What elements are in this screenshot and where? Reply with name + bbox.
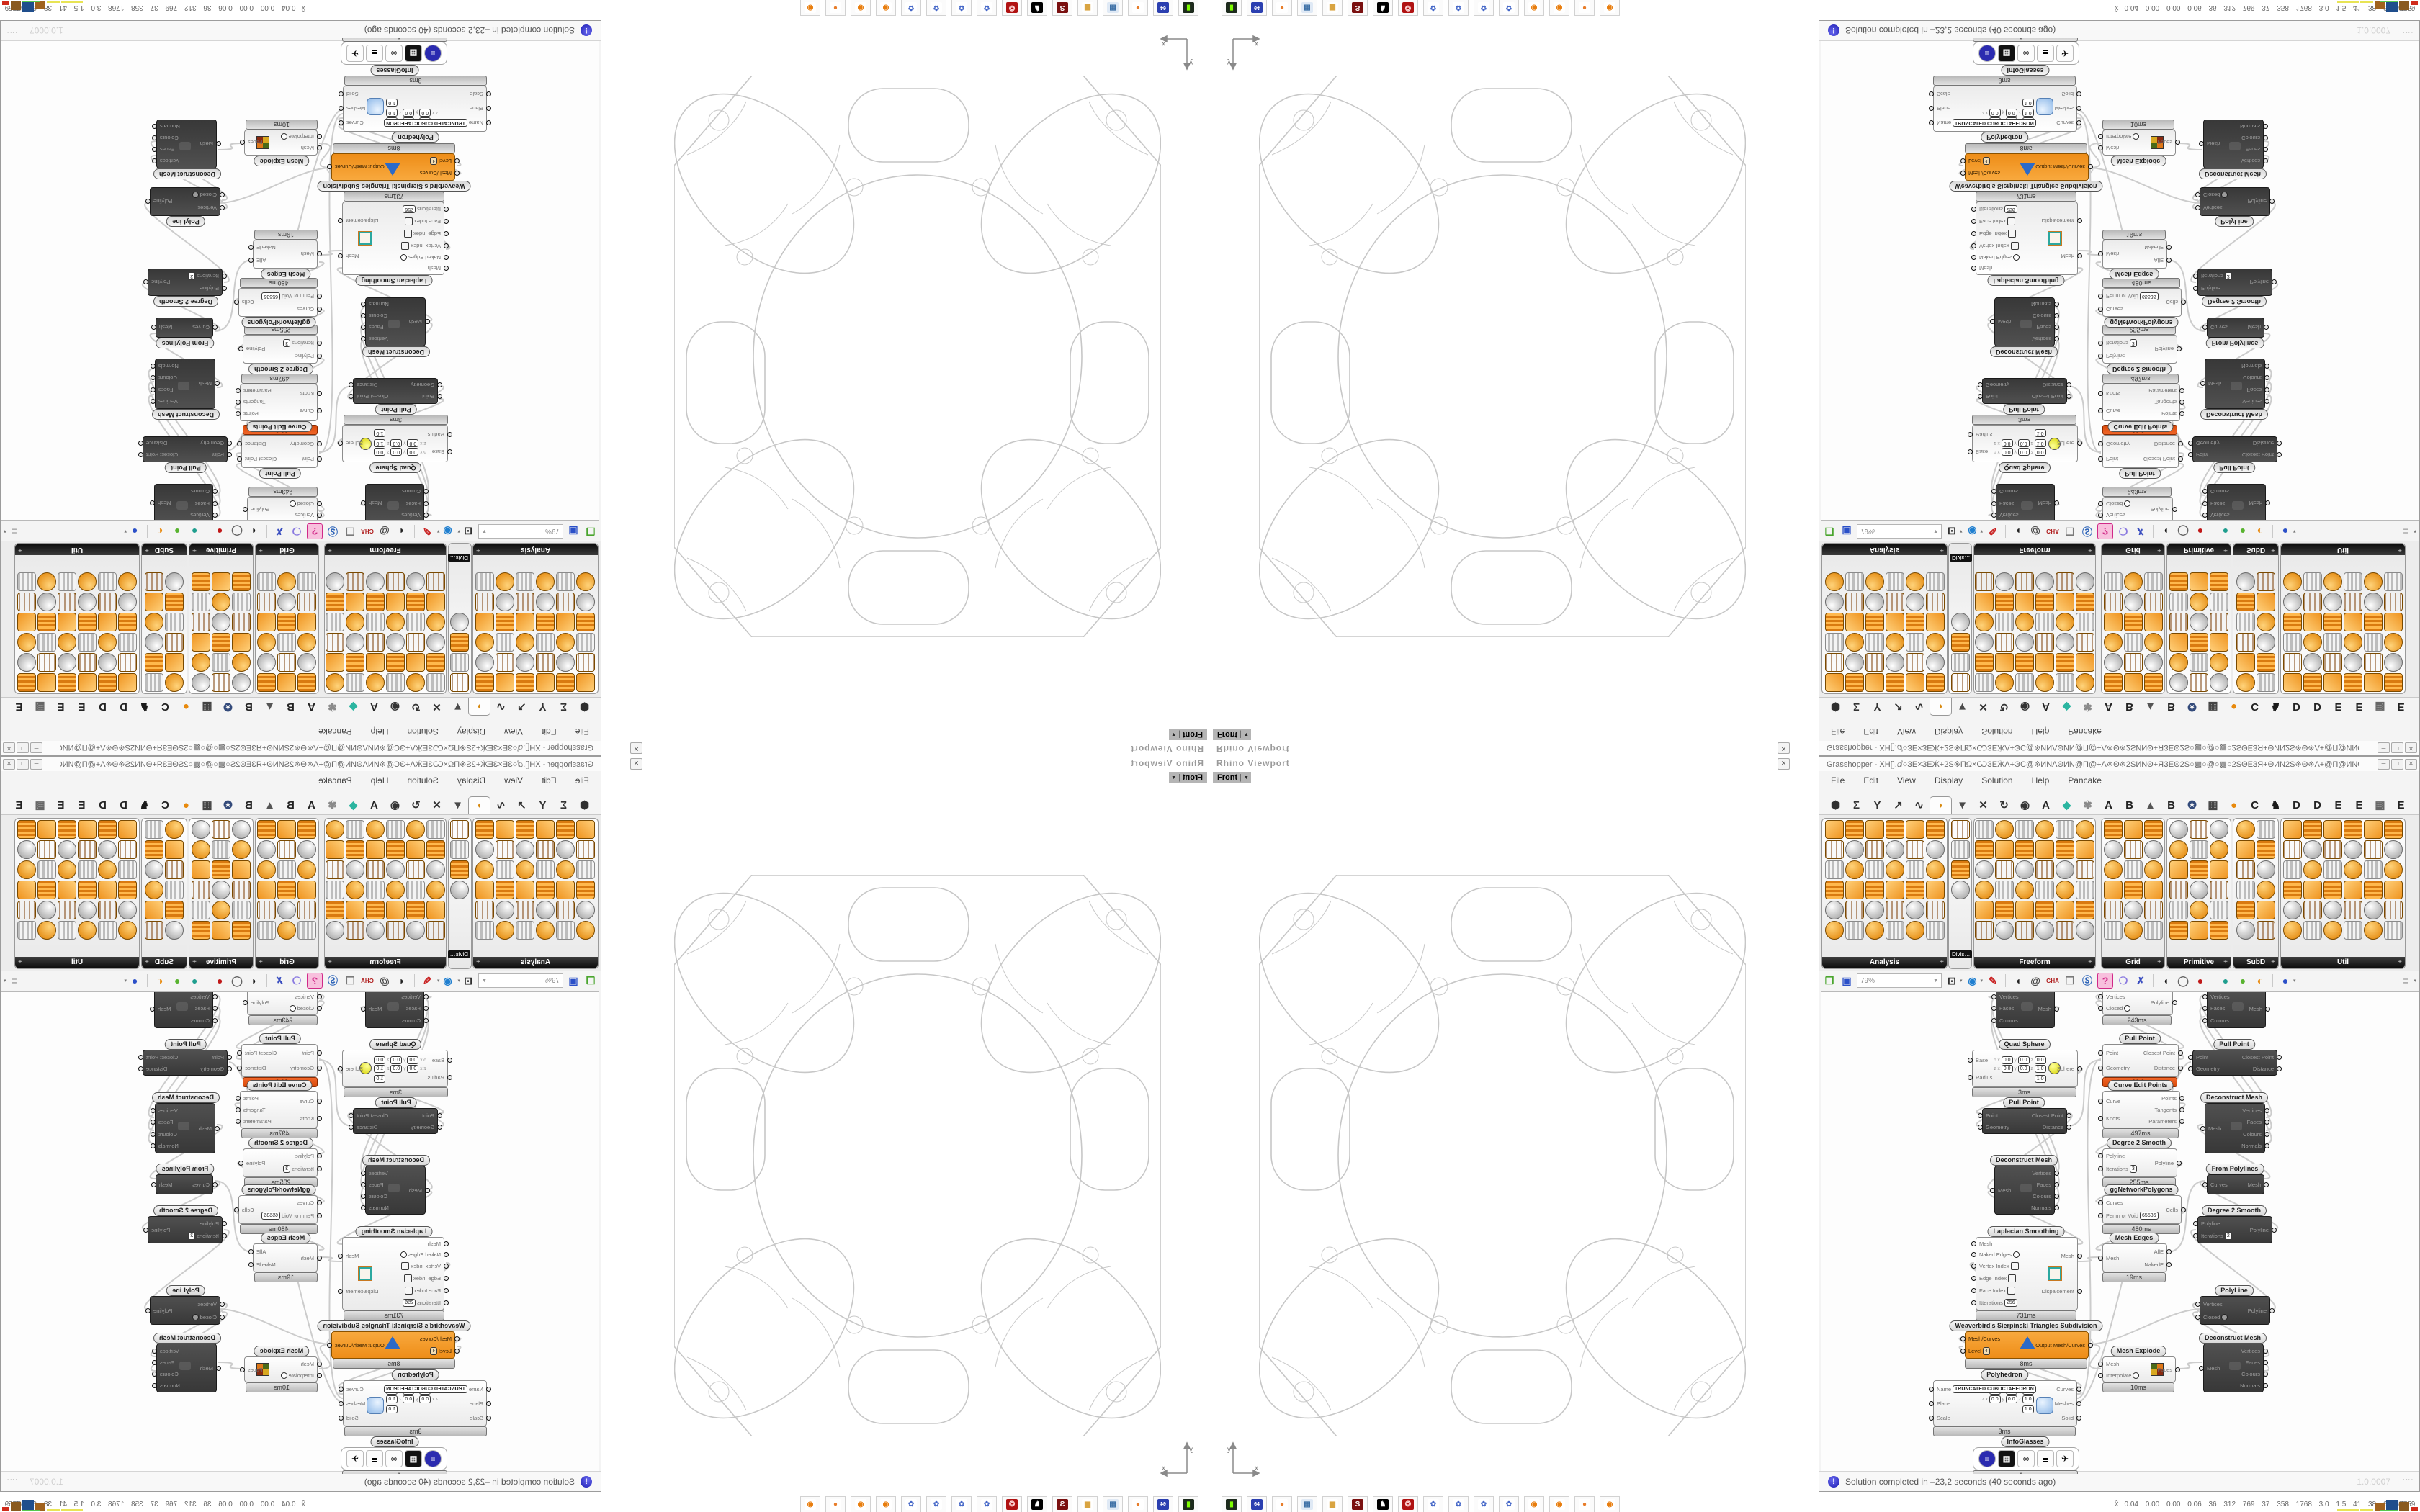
component-tile[interactable] xyxy=(2364,840,2383,859)
component-tile[interactable] xyxy=(1975,633,1994,652)
component-tile[interactable] xyxy=(278,633,297,652)
viewport-tab-front[interactable]: Front | ▼ xyxy=(1169,729,1207,740)
component-tile[interactable] xyxy=(145,840,163,859)
component-tile[interactable] xyxy=(2056,653,2074,672)
component-tile[interactable] xyxy=(1886,673,1904,692)
tab-curve[interactable]: ∿ xyxy=(490,798,511,814)
component-tile[interactable] xyxy=(476,901,495,919)
component-tile[interactable] xyxy=(451,840,470,859)
component-tile[interactable] xyxy=(278,901,297,919)
toolbar-overflow-button-icon[interactable]: ≡ xyxy=(2398,524,2413,539)
zoom-extents-button-icon[interactable]: ⊡ xyxy=(1945,973,1959,988)
component-tile[interactable] xyxy=(1975,921,1994,940)
dropdown-arrow-icon[interactable]: ▾ xyxy=(457,978,460,984)
balloons-button-icon[interactable]: ❍ xyxy=(2116,973,2130,988)
tab-plugin-e1[interactable]: E xyxy=(2328,799,2349,814)
node-degree-2-smooth[interactable]: PolylineIterations2Polyline xyxy=(148,1216,223,1243)
component-tile[interactable] xyxy=(557,820,575,839)
gh-minimize-button[interactable]: ─ xyxy=(30,742,42,753)
taskbar-app-blender[interactable]: ◉ xyxy=(1600,1496,1620,1512)
component-tile[interactable] xyxy=(2384,633,2403,652)
component-tile[interactable] xyxy=(1845,840,1864,859)
component-tile[interactable] xyxy=(2323,840,2342,859)
infoglasses-icon-3[interactable]: ≣ xyxy=(366,1450,383,1467)
tab-plugin-b1[interactable]: B xyxy=(2119,799,2140,814)
infoglasses-button-icon[interactable]: @ xyxy=(377,973,392,988)
node-polyline[interactable]: VerticesClosedPolyline xyxy=(2200,1296,2270,1325)
combo-arrow-icon[interactable]: ▼ xyxy=(482,529,487,534)
component-tile[interactable] xyxy=(2257,840,2275,859)
tab-mesh[interactable]: ▼ xyxy=(1952,799,1973,814)
component-tile[interactable] xyxy=(496,593,515,611)
component-tile[interactable] xyxy=(1845,653,1864,672)
tab-plugin-grid[interactable]: ▦ xyxy=(197,698,218,714)
menu-item-file[interactable]: File xyxy=(1829,725,1846,738)
preview-selected-button-icon[interactable]: ● xyxy=(2218,973,2233,988)
export-view-button-icon[interactable]: ❐ xyxy=(2063,973,2077,988)
preview-off-button-icon[interactable]: ◖ xyxy=(247,524,261,539)
component-tile[interactable] xyxy=(2344,820,2362,839)
component-tile[interactable] xyxy=(1975,881,1994,899)
component-tile[interactable] xyxy=(1886,840,1904,859)
component-tile[interactable] xyxy=(366,673,385,692)
component-tile[interactable] xyxy=(2015,572,2034,591)
combo-arrow-icon[interactable]: ▼ xyxy=(1933,978,1938,984)
component-tile[interactable] xyxy=(1825,593,1844,611)
component-tile[interactable] xyxy=(451,653,470,672)
component-tile[interactable] xyxy=(278,653,297,672)
component-tile[interactable] xyxy=(1926,572,1945,591)
component-tile[interactable] xyxy=(496,820,515,839)
component-tile[interactable] xyxy=(2364,613,2383,631)
node-ggnetworkpolygons[interactable]: CurvesPerim or Void65536Cells xyxy=(238,1195,318,1224)
taskbar-app-folder[interactable]: ▆ xyxy=(1322,1496,1343,1512)
component-tile[interactable] xyxy=(386,840,405,859)
tab-params[interactable]: ⬢ xyxy=(574,798,595,814)
component-tile[interactable] xyxy=(298,613,317,631)
taskbar-app-folder[interactable]: ▆ xyxy=(1077,0,1098,16)
taskbar-app-emulator[interactable]: ▮ xyxy=(1178,1496,1198,1512)
component-tile[interactable] xyxy=(346,901,364,919)
gh-maximize-button[interactable]: □ xyxy=(17,742,29,753)
component-tile[interactable] xyxy=(2323,593,2342,611)
component-tile[interactable] xyxy=(1865,633,1884,652)
tab-plugin-dot[interactable]: ● xyxy=(2223,799,2244,814)
node-construct-mesh[interactable]: VerticesFacesColoursMesh xyxy=(1996,991,2055,1028)
taskbar-app-paint[interactable]: ✿ xyxy=(1474,1496,1494,1512)
component-tile[interactable] xyxy=(165,860,184,879)
value-box[interactable]: 4 xyxy=(1983,158,1990,166)
component-tile[interactable] xyxy=(1926,613,1945,631)
component-tile[interactable] xyxy=(78,653,97,672)
tab-plugin-dots[interactable]: ▩ xyxy=(30,698,50,714)
palette-label[interactable]: Freeform+ xyxy=(325,957,446,968)
node-degree-2-smooth[interactable]: PolylineIterations3Polyline xyxy=(2102,335,2177,364)
component-tile[interactable] xyxy=(2104,633,2123,652)
tab-plugin-d2[interactable]: D xyxy=(2307,698,2328,713)
component-tile[interactable] xyxy=(2169,653,2188,672)
save-file-button-icon[interactable]: ▣ xyxy=(1839,973,1854,988)
taskbar-app-knight-black[interactable]: ♞ xyxy=(1373,0,1393,16)
component-tile[interactable] xyxy=(406,653,425,672)
component-tile[interactable] xyxy=(2104,673,2123,692)
node-from-polylines[interactable]: CurvesMesh xyxy=(156,318,213,338)
component-tile[interactable] xyxy=(1975,860,1994,879)
tab-intersect[interactable]: ✕ xyxy=(1973,798,1994,814)
taskbar-app-blender[interactable]: ◉ xyxy=(851,1496,871,1512)
viewport-tab-front[interactable]: Front | ▼ xyxy=(1169,772,1207,783)
component-tile[interactable] xyxy=(165,613,184,631)
component-tile[interactable] xyxy=(2035,572,2054,591)
document-preview-button-icon[interactable]: ● xyxy=(2278,524,2293,539)
taskbar-app-paint[interactable]: ✿ xyxy=(1448,0,1469,16)
tab-intersect[interactable]: ✕ xyxy=(426,698,447,714)
taskbar-app-firefox[interactable]: ● xyxy=(825,1496,846,1512)
component-tile[interactable] xyxy=(2169,820,2188,839)
component-tile[interactable] xyxy=(577,613,596,631)
component-tile[interactable] xyxy=(78,633,97,652)
component-tile[interactable] xyxy=(2076,840,2094,859)
component-tile[interactable] xyxy=(326,633,344,652)
node-construct-mesh[interactable]: VerticesFacesColoursMesh xyxy=(2207,484,2266,521)
menu-item-solution[interactable]: Solution xyxy=(1980,725,2014,738)
balloons-button-icon[interactable]: ❍ xyxy=(290,524,304,539)
component-tile[interactable] xyxy=(1845,673,1864,692)
menu-item-view[interactable]: View xyxy=(503,725,524,738)
component-tile[interactable] xyxy=(1845,820,1864,839)
component-tile[interactable] xyxy=(2190,593,2208,611)
component-tile[interactable] xyxy=(1926,673,1945,692)
component-tile[interactable] xyxy=(2257,881,2275,899)
component-tile[interactable] xyxy=(78,881,97,899)
component-tile[interactable] xyxy=(2035,653,2054,672)
gha-loader-button-icon[interactable]: GHA xyxy=(2045,973,2060,988)
component-tile[interactable] xyxy=(2124,633,2143,652)
menu-item-file[interactable]: File xyxy=(574,774,591,787)
node-weaverbird-s-sierpinski-triangles-subdivision[interactable]: Mesh/CurvesLevel4Output Mesh/Curves xyxy=(1965,153,2089,181)
component-tile[interactable] xyxy=(232,840,251,859)
component-tile[interactable] xyxy=(386,921,405,940)
component-tile[interactable] xyxy=(2210,673,2228,692)
toggle-on[interactable] xyxy=(2221,1314,2228,1320)
component-tile[interactable] xyxy=(58,840,76,859)
search-components-button-icon[interactable]: Ⓢ xyxy=(2080,524,2094,539)
component-tile[interactable] xyxy=(2364,860,2383,879)
component-tile[interactable] xyxy=(2190,613,2208,631)
menu-item-pancake[interactable]: Pancake xyxy=(2066,725,2103,738)
component-tile[interactable] xyxy=(1906,572,1924,591)
component-tile[interactable] xyxy=(1926,901,1945,919)
taskbar-app-c64-disk[interactable]: 64 xyxy=(1247,1496,1267,1512)
menu-item-edit[interactable]: Edit xyxy=(540,725,558,738)
tab-plugin-b2[interactable]: B xyxy=(238,799,259,814)
menu-item-display[interactable]: Display xyxy=(1933,725,1964,738)
node-from-polylines[interactable]: CurvesMesh xyxy=(2207,318,2264,338)
taskbar-app-paint[interactable]: ✿ xyxy=(951,0,972,16)
component-tile[interactable] xyxy=(258,613,277,631)
taskbar-app-blender[interactable]: ◉ xyxy=(1524,0,1544,16)
component-tile[interactable] xyxy=(2236,840,2255,859)
node-from-polylines[interactable]: CurvesMesh xyxy=(2207,1174,2264,1194)
component-tile[interactable] xyxy=(2236,673,2255,692)
component-tile[interactable] xyxy=(1825,901,1844,919)
component-tile[interactable] xyxy=(2104,820,2123,839)
preview-off-button-icon[interactable]: ◖ xyxy=(247,973,261,988)
dropdown-arrow-icon[interactable]: ▾ xyxy=(1960,978,1963,984)
component-tile[interactable] xyxy=(346,860,364,879)
component-tile[interactable] xyxy=(165,593,184,611)
component-tile[interactable] xyxy=(232,633,251,652)
tab-display[interactable]: ◉ xyxy=(385,798,405,814)
component-tile[interactable] xyxy=(2210,881,2228,899)
checkbox[interactable] xyxy=(405,1287,413,1295)
plane-box[interactable]: 0.0 xyxy=(2018,1056,2030,1064)
component-tile[interactable] xyxy=(2056,820,2074,839)
component-tile[interactable] xyxy=(2236,820,2255,839)
component-tile[interactable] xyxy=(258,860,277,879)
component-tile[interactable] xyxy=(451,860,470,879)
component-tile[interactable] xyxy=(2344,593,2362,611)
component-tile[interactable] xyxy=(516,840,535,859)
palette-label[interactable]: Util+ xyxy=(15,957,139,968)
node-mesh-edges[interactable]: MeshAllENakedE xyxy=(2102,240,2167,269)
palette-label[interactable]: Grid+ xyxy=(2102,957,2164,968)
component-tile[interactable] xyxy=(232,593,251,611)
value-box[interactable]: 2 xyxy=(2225,1232,2232,1240)
gh-titlebar[interactable]: Grasshopper - ХН[].ⅆ○ЗЕ×ЗЕӜ+2Ѕ※ПΩ×ѠЗЕӜА+… xyxy=(1819,757,2419,771)
tab-mesh[interactable]: ▼ xyxy=(1952,698,1973,713)
component-tile[interactable] xyxy=(1995,881,2014,899)
node-deconstruct-mesh[interactable]: MeshVerticesFacesColoursNormals xyxy=(365,297,426,346)
component-tile[interactable] xyxy=(2035,840,2054,859)
component-tile[interactable] xyxy=(278,572,297,591)
component-tile[interactable] xyxy=(2236,860,2255,879)
obscure-viewport-button-icon[interactable]: ◖ xyxy=(395,973,409,988)
node-deconstruct-mesh[interactable]: MeshVerticesFacesColoursNormals xyxy=(365,1166,426,1215)
component-tile[interactable] xyxy=(118,653,137,672)
taskbar-app-blender[interactable]: ◉ xyxy=(1549,0,1569,16)
component-tile[interactable] xyxy=(1975,572,1994,591)
infoglasses-icon-0[interactable]: ≡ xyxy=(1978,45,1996,62)
component-tile[interactable] xyxy=(2384,901,2403,919)
component-tile[interactable] xyxy=(298,901,317,919)
component-tile[interactable] xyxy=(557,572,575,591)
gh-close-button[interactable]: ✕ xyxy=(2405,742,2417,753)
component-tile[interactable] xyxy=(476,921,495,940)
infoglasses-icon-3[interactable]: ≣ xyxy=(366,45,383,62)
component-tile[interactable] xyxy=(2303,613,2322,631)
canvas-paint-button-icon[interactable]: ✎ xyxy=(420,973,434,988)
component-tile[interactable] xyxy=(2169,860,2188,879)
component-tile[interactable] xyxy=(1865,921,1884,940)
component-tile[interactable] xyxy=(2236,901,2255,919)
component-tile[interactable] xyxy=(2236,881,2255,899)
component-tile[interactable] xyxy=(2056,840,2074,859)
tab-plugin-dot[interactable]: ● xyxy=(176,799,197,814)
taskbar-app-calculator[interactable]: ▦ xyxy=(1103,1496,1123,1512)
component-tile[interactable] xyxy=(2283,921,2302,940)
component-tile[interactable] xyxy=(145,881,163,899)
component-tile[interactable] xyxy=(1906,653,1924,672)
tab-plugin-shield[interactable]: ✪ xyxy=(2182,698,2202,714)
component-tile[interactable] xyxy=(278,593,297,611)
node-pull-point[interactable]: PointGeometryClosest PointDistance xyxy=(241,1044,318,1077)
component-tile[interactable] xyxy=(98,921,117,940)
component-tile[interactable] xyxy=(98,840,117,859)
plane-box[interactable]: 0.0 xyxy=(2018,1065,2030,1073)
dropdown-arrow-icon[interactable]: ▾ xyxy=(2293,978,2296,984)
component-tile[interactable] xyxy=(2236,633,2255,652)
component-tile[interactable] xyxy=(232,881,251,899)
component-tile[interactable] xyxy=(2257,921,2275,940)
tab-plugin-a1[interactable]: A xyxy=(364,799,385,814)
component-tile[interactable] xyxy=(278,840,297,859)
node-deconstruct-mesh[interactable]: MeshVerticesFacesColoursNormals xyxy=(1994,297,2055,346)
taskbar-app-firefox[interactable]: ● xyxy=(1128,1496,1148,1512)
toggle-on[interactable] xyxy=(2221,192,2228,199)
node-degree-2-smooth[interactable]: PolylineIterations2Polyline xyxy=(2197,269,2272,296)
pin-preview-button-icon[interactable]: ● xyxy=(2236,524,2250,539)
viewport-tab-arrow-icon[interactable]: ▼ xyxy=(1244,732,1249,737)
component-tile[interactable] xyxy=(2144,673,2163,692)
component-tile[interactable] xyxy=(78,901,97,919)
tab-plugin-c[interactable]: C xyxy=(155,698,176,713)
node-curve-edit-points[interactable]: CurveKnotsPointsTangentsParameters xyxy=(2102,384,2180,421)
toggle-off[interactable] xyxy=(2124,1005,2130,1012)
component-tile[interactable] xyxy=(346,820,364,839)
node-infoglasses[interactable]: ≡▦∞≣✈ xyxy=(1973,42,2079,65)
export-view-button-icon[interactable]: ❐ xyxy=(343,973,357,988)
component-tile[interactable] xyxy=(1845,633,1864,652)
tab-plugin-flower[interactable]: ✾ xyxy=(2077,798,2098,814)
component-tile[interactable] xyxy=(451,613,470,631)
component-tile[interactable] xyxy=(2303,593,2322,611)
component-tile[interactable] xyxy=(2035,613,2054,631)
component-tile[interactable] xyxy=(212,673,230,692)
node-curve-edit-points[interactable]: CurveKnotsPointsTangentsParameters xyxy=(2102,1091,2180,1128)
component-tile[interactable] xyxy=(2104,572,2123,591)
tab-plugin-shield[interactable]: ✪ xyxy=(218,698,238,714)
menu-item-help[interactable]: Help xyxy=(369,774,390,787)
component-tile[interactable] xyxy=(258,840,277,859)
taskbar-app-paint[interactable]: ✿ xyxy=(1448,1496,1469,1512)
tab-plugin-e3[interactable]: E xyxy=(9,698,30,713)
component-tile[interactable] xyxy=(406,840,425,859)
component-tile[interactable] xyxy=(1926,653,1945,672)
tab-display[interactable]: ◉ xyxy=(2015,798,2035,814)
component-tile[interactable] xyxy=(278,673,297,692)
component-tile[interactable] xyxy=(2384,572,2403,591)
component-tile[interactable] xyxy=(2124,901,2143,919)
component-tile[interactable] xyxy=(1825,653,1844,672)
pin-preview-button-icon[interactable]: ● xyxy=(170,524,184,539)
component-tile[interactable] xyxy=(346,881,364,899)
component-tile[interactable] xyxy=(366,901,385,919)
component-tile[interactable] xyxy=(1906,673,1924,692)
component-tile[interactable] xyxy=(1886,820,1904,839)
custom-preview-button-icon[interactable]: ◐ xyxy=(153,524,167,539)
tab-plugin-e2[interactable]: E xyxy=(50,698,71,713)
component-tile[interactable] xyxy=(192,881,210,899)
component-tile[interactable] xyxy=(426,593,445,611)
dropdown-arrow-icon[interactable]: ▾ xyxy=(2414,528,2416,534)
value-box[interactable]: 3 xyxy=(283,1165,290,1173)
component-tile[interactable] xyxy=(2190,881,2208,899)
gh-close-button[interactable]: ✕ xyxy=(3,742,15,753)
tab-plugin-c[interactable]: C xyxy=(155,799,176,814)
tab-plugin-b1[interactable]: B xyxy=(2119,698,2140,713)
component-tile[interactable] xyxy=(2015,673,2034,692)
component-tile[interactable] xyxy=(346,673,364,692)
component-tile[interactable] xyxy=(451,673,470,692)
component-tile[interactable] xyxy=(298,653,317,672)
component-tile[interactable] xyxy=(2303,881,2322,899)
tab-maths[interactable]: Σ xyxy=(1846,698,1867,713)
menu-item-help[interactable]: Help xyxy=(369,725,390,738)
value-box[interactable]: 256 xyxy=(403,205,416,213)
node-ggnetworkpolygons[interactable]: CurvesPerim or Void65536Cells xyxy=(2102,1195,2182,1224)
menu-item-file[interactable]: File xyxy=(574,725,591,738)
component-tile[interactable] xyxy=(1995,593,2014,611)
node-polyhedron[interactable]: NameTRUNCATED CUBOCTAHEDRONPlaneScaleCur… xyxy=(343,1380,487,1426)
node-mesh-explode[interactable]: MeshInterpolateFaces xyxy=(244,1356,318,1382)
tab-plugin-e2[interactable]: E xyxy=(2349,799,2370,814)
component-tile[interactable] xyxy=(2323,572,2342,591)
component-tile[interactable] xyxy=(516,881,535,899)
component-tile[interactable] xyxy=(17,921,36,940)
infoglasses-icon-0[interactable]: ≡ xyxy=(424,45,442,62)
export-view-button-icon[interactable]: ❐ xyxy=(343,524,357,539)
component-tile[interactable] xyxy=(192,633,210,652)
component-tile[interactable] xyxy=(1975,673,1994,692)
component-tile[interactable] xyxy=(537,820,555,839)
component-tile[interactable] xyxy=(212,572,230,591)
menu-item-display[interactable]: Display xyxy=(456,774,487,787)
tab-plugin-a2[interactable]: A xyxy=(2098,799,2119,814)
component-tile[interactable] xyxy=(58,881,76,899)
component-tile[interactable] xyxy=(2236,593,2255,611)
component-tile[interactable] xyxy=(2344,653,2362,672)
component-tile[interactable] xyxy=(212,653,230,672)
gha-loader-button-icon[interactable]: GHA xyxy=(360,973,375,988)
component-tile[interactable] xyxy=(496,572,515,591)
tab-vector[interactable]: ↗ xyxy=(1888,798,1909,814)
component-tile[interactable] xyxy=(192,653,210,672)
palette-label[interactable]: Analysis+ xyxy=(1822,544,1947,555)
component-tile[interactable] xyxy=(258,653,277,672)
node-mesh-edges[interactable]: MeshAllENakedE xyxy=(253,240,318,269)
component-tile[interactable] xyxy=(165,572,184,591)
component-tile[interactable] xyxy=(476,613,495,631)
component-tile[interactable] xyxy=(496,881,515,899)
infoglasses-icon-0[interactable]: ≡ xyxy=(1978,1450,1996,1467)
component-tile[interactable] xyxy=(2210,921,2228,940)
tab-plugin-b2[interactable]: B xyxy=(2161,698,2182,713)
component-tile[interactable] xyxy=(406,901,425,919)
component-tile[interactable] xyxy=(516,921,535,940)
infoglasses-icon-0[interactable]: ≡ xyxy=(424,1450,442,1467)
open-file-button-icon[interactable]: ❐ xyxy=(583,524,598,539)
component-tile[interactable] xyxy=(2283,820,2302,839)
plane-box[interactable]: 0.0 xyxy=(2002,448,2013,456)
node-polyline[interactable]: VerticesClosedPolyline xyxy=(2102,497,2173,521)
component-tile[interactable] xyxy=(2283,593,2302,611)
combo-arrow-icon[interactable]: ▼ xyxy=(482,978,487,984)
preview-settings-button-icon[interactable]: ◉ xyxy=(440,524,454,539)
toggle-on[interactable] xyxy=(192,192,199,199)
dropdown-arrow-icon[interactable]: ▾ xyxy=(437,978,440,984)
node-deconstruct-mesh[interactable]: MeshVerticesFacesColoursNormals xyxy=(155,359,215,409)
